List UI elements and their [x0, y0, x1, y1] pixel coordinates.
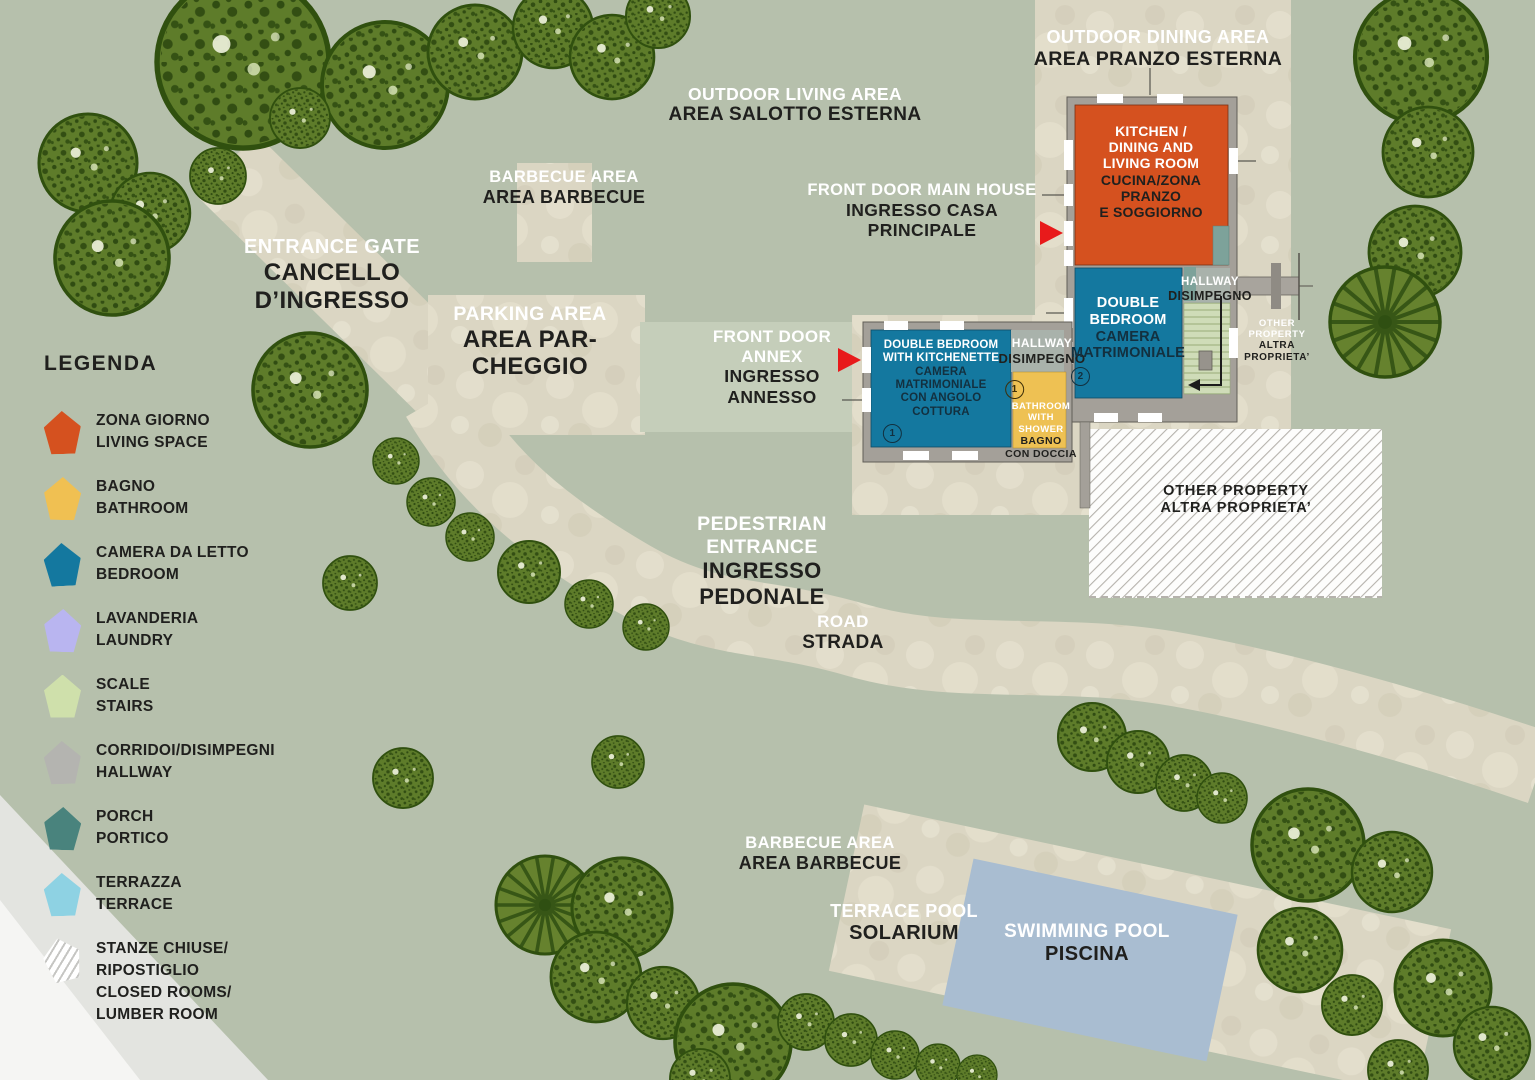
porch-swatch-icon [43, 806, 81, 850]
label-room-bedroom-main: DOUBLE BEDROOM CAMERA MATRIMONIALE 2 [1071, 295, 1185, 386]
legend-title: LEGENDA [44, 352, 275, 376]
tree-icon [1454, 1007, 1530, 1080]
terrace-swatch-icon [43, 872, 81, 916]
legend-item-terrace: TERRAZZATERRACE [44, 872, 275, 916]
tree-icon [565, 580, 613, 628]
legend-panel: LEGENDA ZONA GIORNOLIVING SPACE BAGNOBAT… [44, 352, 275, 1048]
legend-item-stairs: SCALESTAIRS [44, 674, 275, 718]
tree-icon [1322, 975, 1382, 1035]
bedroom-swatch-icon [43, 542, 82, 587]
tree-icon [428, 5, 522, 99]
tree-icon [825, 1014, 877, 1066]
tree-icon [1252, 789, 1364, 901]
palm-tree-icon [1330, 267, 1440, 377]
property-site-map: OUTDOOR DINING AREA AREA PRANZO ESTERNA … [0, 0, 1535, 1080]
label-room-bedroom-annex: DOUBLE BEDROOM WITH KITCHENETTE CAMERA M… [883, 339, 999, 443]
porch-square-a [1213, 226, 1229, 265]
label-outdoor-dining: OUTDOOR DINING AREA AREA PRANZO ESTERNA [1034, 27, 1282, 70]
stairs-swatch-icon [44, 675, 81, 718]
room-number-badge: 1 [1005, 380, 1024, 399]
tree-icon [407, 478, 455, 526]
label-front-door-annex: FRONT DOOR ANNEX INGRESSO ANNESSO [713, 327, 831, 407]
legend-item-closed-rooms: STANZE CHIUSE/ RIPOSTIGLIO CLOSED ROOMS/… [44, 938, 275, 1026]
tree-icon [957, 1055, 997, 1080]
tree-icon [190, 148, 246, 204]
label-other-property-small: OTHER PROPERTY ALTRA PROPRIETA’ [1244, 318, 1310, 363]
tree-icon [1355, 0, 1487, 123]
tree-icon [55, 201, 169, 315]
tree-icon [1383, 107, 1473, 197]
label-front-door-main: FRONT DOOR MAIN HOUSE INGRESSO CASA PRIN… [807, 181, 1036, 241]
legend-item-living: ZONA GIORNOLIVING SPACE [44, 410, 275, 454]
tree-icon [871, 1031, 919, 1079]
label-other-property-hatched: OTHER PROPERTY ALTRA PROPRIETA’ [1160, 483, 1311, 517]
label-swimming-pool: SWIMMING POOL PISCINA [1004, 921, 1170, 966]
tree-icon [592, 736, 644, 788]
tree-icon [270, 88, 330, 148]
legend-item-porch: PORCHPORTICO [44, 806, 275, 850]
label-entrance-gate: ENTRANCE GATE CANCELLO D’INGRESSO [244, 236, 420, 315]
tree-icon [373, 748, 433, 808]
label-room-kitchen: KITCHEN / DINING AND LIVING ROOM CUCINA/… [1099, 123, 1202, 220]
tree-icon [323, 556, 377, 610]
legend-item-bathroom: BAGNOBATHROOM [44, 476, 275, 520]
tree-icon [1197, 773, 1247, 823]
tree-icon [1352, 832, 1432, 912]
living-space-swatch-icon [43, 410, 81, 454]
label-barbecue-top: BARBECUE AREA AREA BARBECUE [483, 168, 646, 208]
room-number-badge: 1 [883, 424, 902, 443]
label-barbecue-bottom: BARBECUE AREA AREA BARBECUE [739, 834, 902, 874]
tree-icon [498, 541, 560, 603]
label-terrace-pool: TERRACE POOL SOLARIUM [830, 901, 978, 945]
stairs-area [1184, 303, 1230, 394]
label-parking: PARKING AREA AREA PAR- CHEGGIO [453, 303, 606, 381]
bathroom-swatch-icon [44, 476, 82, 520]
laundry-swatch-icon [43, 608, 81, 652]
closed-rooms-swatch-icon [39, 934, 85, 985]
label-road: ROAD STRADA [802, 612, 884, 654]
tree-icon [623, 604, 669, 650]
tree-icon [916, 1044, 960, 1080]
legend-item-bedroom: CAMERA DA LETTOBEDROOM [44, 542, 275, 586]
legend-item-hallway: CORRIDOI/DISIMPEGNIHALLWAY [44, 740, 275, 784]
hallway-swatch-icon [43, 740, 81, 784]
label-room-bathroom: 1 BATHROOM WITH SHOWER BAGNO CON DOCCIA [1005, 380, 1077, 460]
tree-icon [373, 438, 419, 484]
label-pedestrian-entrance: PEDESTRIAN ENTRANCE INGRESSO PEDONALE [697, 513, 827, 609]
label-outdoor-living: OUTDOOR LIVING AREA AREA SALOTTO ESTERNA [669, 84, 922, 126]
tree-icon [1258, 908, 1342, 992]
tree-icon [446, 513, 494, 561]
interior-door [1199, 351, 1212, 370]
legend-item-laundry: LAVANDERIALAUNDRY [44, 608, 275, 652]
